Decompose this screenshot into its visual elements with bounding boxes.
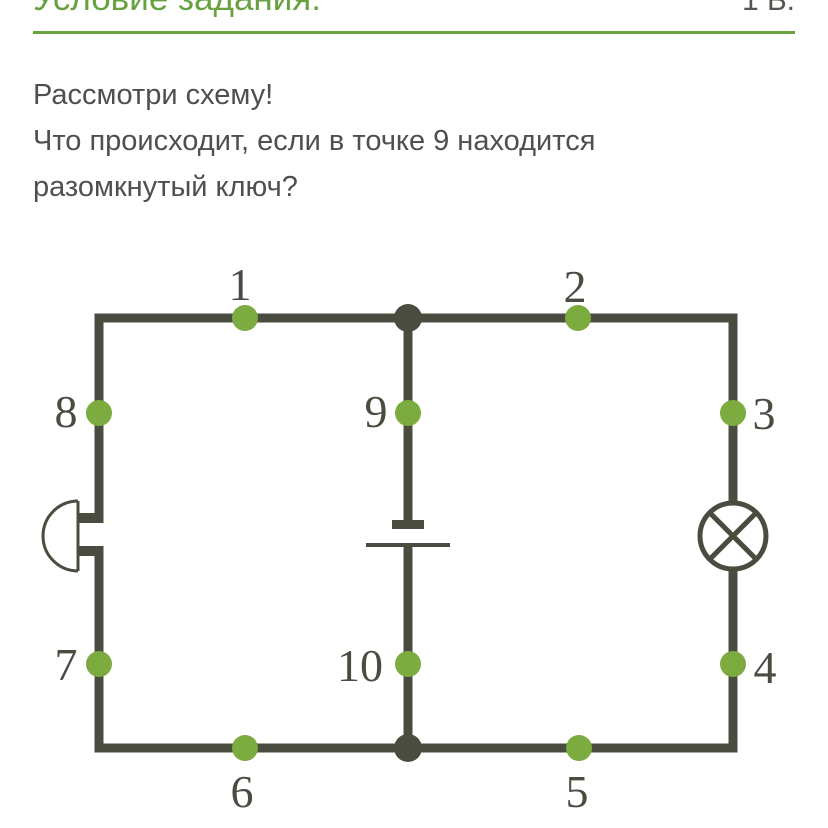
junction-top-dot xyxy=(394,304,422,332)
point-label-4: 4 xyxy=(754,645,777,691)
point-label-9: 9 xyxy=(365,389,388,435)
circuit-svg xyxy=(0,0,828,828)
point-label-5: 5 xyxy=(566,769,589,815)
point-3-dot xyxy=(720,400,746,426)
point-4-dot xyxy=(720,651,746,677)
point-5-dot xyxy=(566,735,592,761)
bell-icon xyxy=(43,501,99,571)
circuit-wires xyxy=(95,314,738,753)
point-10-dot xyxy=(395,651,421,677)
task-page: Условие задания: 1 Б. Рассмотри схему! Ч… xyxy=(0,0,828,828)
point-label-1: 1 xyxy=(229,262,252,308)
junction-bottom-dot xyxy=(394,734,422,762)
point-label-6: 6 xyxy=(231,769,254,815)
point-label-2: 2 xyxy=(564,264,587,310)
point-8-dot xyxy=(86,400,112,426)
point-dots xyxy=(86,305,746,761)
point-7-dot xyxy=(86,651,112,677)
circuit-diagram: 1 2 3 4 5 6 7 8 9 10 xyxy=(0,0,828,828)
battery-icon xyxy=(366,525,450,546)
point-label-7: 7 xyxy=(55,642,78,688)
point-label-8: 8 xyxy=(55,389,78,435)
bell-dome xyxy=(43,501,78,571)
point-label-3: 3 xyxy=(753,391,776,437)
lamp-icon xyxy=(700,503,766,569)
point-label-10: 10 xyxy=(337,643,383,689)
point-9-dot xyxy=(395,400,421,426)
point-6-dot xyxy=(232,735,258,761)
